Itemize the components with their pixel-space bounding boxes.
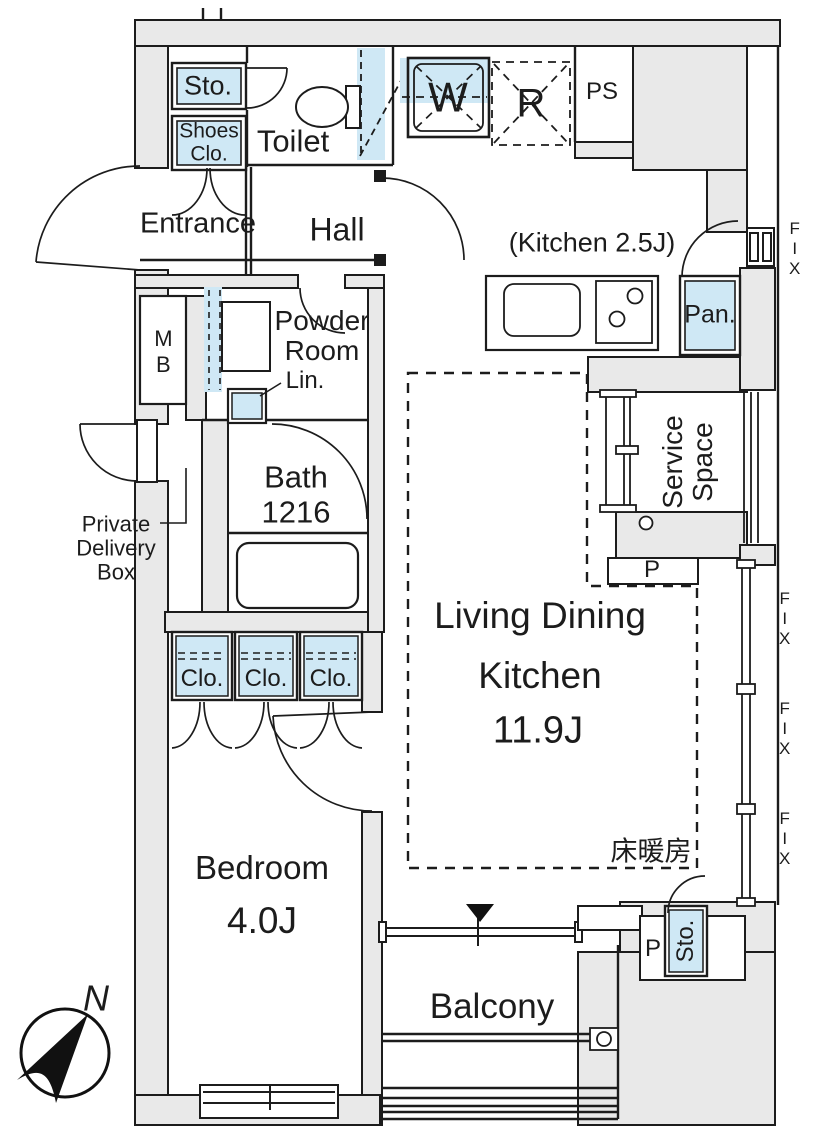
front-door	[36, 166, 140, 270]
storage-bottom-label: Sto.	[673, 920, 699, 963]
closet-doors	[172, 702, 362, 748]
closet-label-2: Clo.	[245, 666, 288, 692]
bedroom-label: Bedroom	[195, 850, 329, 886]
compass-icon	[17, 1009, 109, 1103]
pantry-label: Pan.	[684, 302, 735, 329]
balcony-sliding-door	[379, 918, 582, 946]
burner	[610, 312, 625, 327]
fridge-label: R	[517, 82, 546, 125]
toilet-fixture	[296, 86, 360, 128]
balcony-label: Balcony	[430, 988, 555, 1026]
living-dining-label: Living Dining	[434, 596, 646, 636]
storage-top-label: Sto.	[184, 71, 232, 100]
meter-box-label: MB	[151, 326, 175, 378]
bedroom-size-label: 4.0J	[227, 901, 297, 941]
bath-label: Bath	[264, 460, 328, 493]
linen-box	[228, 383, 281, 423]
washer-label: W	[428, 74, 468, 119]
kitchen-sink	[504, 284, 580, 336]
toilet-door	[247, 68, 287, 108]
living-kitchen-label: Kitchen	[478, 656, 601, 696]
closet-label-1: Clo.	[181, 666, 224, 692]
service-space-label: Service Space	[658, 397, 718, 527]
shoes-closet-label: Shoes Clo.	[178, 120, 240, 165]
north-label: N	[83, 980, 109, 1019]
fix-label-top: FIX	[785, 219, 803, 279]
floor-heating-label: 床暖房	[611, 837, 692, 866]
hall-door	[382, 178, 464, 260]
toilet-label: Toilet	[257, 124, 329, 157]
service-drain	[640, 517, 653, 530]
balcony-drain	[590, 1028, 618, 1050]
delivery-box-label: Private Delivery Box	[61, 512, 171, 583]
entry-marker-icon	[466, 904, 494, 922]
delivery-door	[80, 424, 137, 481]
kitchen-label: (Kitchen 2.5J)	[509, 228, 676, 257]
bedroom-door	[273, 712, 372, 811]
fix-window-kitchen	[747, 228, 774, 266]
fix-label-3: FIX	[775, 809, 793, 869]
fix-label-1: FIX	[775, 589, 793, 649]
closet-label-3: Clo.	[310, 666, 353, 692]
door-posts	[374, 170, 386, 266]
linen-label: Lin.	[286, 368, 325, 394]
hall-label: Hall	[309, 213, 364, 248]
floor-plan: Sto. Shoes Clo. Toilet W R PS Entrance H…	[0, 0, 818, 1142]
burner	[628, 289, 643, 304]
fix-windows-right	[737, 560, 755, 906]
kitchen-counter	[486, 276, 658, 350]
living-size-label: 11.9J	[493, 710, 583, 751]
entrance-label: Entrance	[140, 208, 256, 239]
fix-label-2: FIX	[775, 699, 793, 759]
wall-band	[578, 906, 642, 930]
kitchen-stove	[596, 281, 652, 343]
bedroom-window	[200, 1085, 338, 1118]
pole-label-bottom: P	[645, 936, 661, 962]
bathtub	[237, 543, 358, 608]
pipe-shaft-label: PS	[586, 79, 618, 105]
pole-label-service: P	[644, 557, 660, 583]
service-space-left-window	[600, 390, 638, 512]
bath-size-label: 1216	[262, 495, 331, 528]
powder-room-label: Powder Room	[260, 306, 385, 366]
